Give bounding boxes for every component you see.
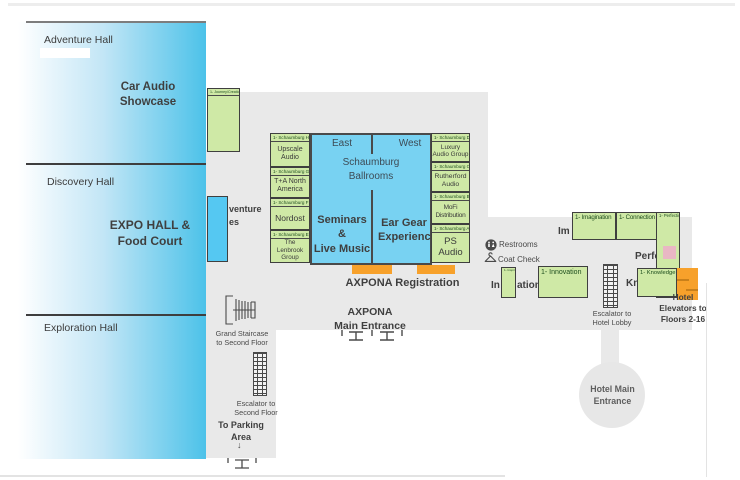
exhibitor-ta-north-america: T+A North America: [271, 176, 309, 197]
hotel-main-entrance-label: Hotel Main Entrance: [585, 384, 640, 408]
ballroom-west-label: West: [394, 138, 426, 149]
exhibitor-lenbrook-group: The Lenbrook Group: [271, 239, 309, 262]
schaumburg-ballrooms: East West Schaumburg Ballrooms Seminars …: [310, 133, 432, 265]
parking-door-symbol: [226, 457, 258, 469]
ballroom-east-label: East: [326, 138, 358, 149]
hall-divider-1: [26, 163, 206, 165]
ear-gear-experience-label: Ear Gear Experience: [378, 216, 430, 245]
elevator-door-line-2: [686, 289, 698, 291]
expo-hall-label: EXPO HALL & Food Court: [100, 218, 200, 249]
restrooms-icon: [485, 239, 497, 251]
restrooms-label: Restrooms: [499, 240, 538, 249]
booth-inspiration: 1- Inspiration: [501, 267, 516, 298]
booth-journey-creation: 1- Journey/Creation: [207, 88, 240, 152]
escalator-second-floor-label: Escalator to Second Floor: [226, 399, 286, 418]
booth-connection: 1- Connection: [616, 212, 658, 240]
booth-knowledge-header: 1- Knowledge: [638, 269, 676, 277]
booth-schaumburg-e-header: 1- Schaumburg E: [271, 231, 309, 239]
discovery-hall-label: Discovery Hall: [47, 176, 114, 189]
booth-schaumburg-e: 1- Schaumburg E The Lenbrook Group: [270, 230, 310, 263]
escalator-hotel-lobby-icon: [603, 264, 618, 308]
booth-schaumburg-g: 1- Schaumburg G T+A North America: [270, 167, 310, 198]
axpona-registration-label: AXPONA Registration: [330, 276, 475, 290]
booth-schaumburg-a-header: 1- Schaumburg A: [432, 225, 469, 233]
exhibitor-rutherford-audio: Rutherford Audio: [432, 171, 469, 191]
main-entrance-door-symbols: [340, 328, 404, 342]
imagination-room-label-fragment: Im: [558, 226, 570, 237]
booth-journey-creation-header: 1- Journey/Creation: [208, 89, 239, 96]
booth-schaumburg-d: 1- Schaumburg D Luxury Audio Group: [431, 133, 470, 162]
booth-schaumburg-h-header: 1- Schaumburg H: [271, 134, 309, 142]
booth-schaumburg-c: 1- Schaumburg C Rutherford Audio: [431, 162, 470, 192]
booth-innovation: 1- Innovation: [538, 266, 588, 298]
floor-plan: Adventure Hall Car Audio Showcase Discov…: [0, 0, 740, 480]
booth-imagination: 1- Imagination: [572, 212, 616, 240]
exhibitor-luxury-audio-group: Luxury Audio Group: [432, 142, 469, 161]
grand-staircase-icon: [222, 293, 259, 327]
booth-schaumburg-a: 1- Schaumburg A PS Audio: [431, 224, 470, 263]
exhibitor-nordost: Nordost: [271, 207, 309, 229]
halls-top-wall: [26, 21, 206, 23]
inspiration-room-label-fragment-left: In: [491, 280, 500, 291]
booth-schaumburg-f-header: 1- Schaumburg F: [271, 199, 309, 207]
blank-patch: [40, 48, 90, 58]
ballroom-divider-top: [371, 135, 373, 154]
booth-perfection-header: 1- Perfection: [657, 213, 679, 219]
booth-schaumburg-d-header: 1- Schaumburg D: [432, 134, 469, 142]
adventure-suites-label-fragment: venture es: [229, 203, 262, 228]
perfection-pink-swatch: [663, 246, 676, 259]
booth-inspiration-header: 1- Inspiration: [502, 268, 515, 273]
escalator-second-floor-icon: [253, 352, 267, 396]
booth-schaumburg-g-header: 1- Schaumburg G: [271, 168, 309, 176]
booth-schaumburg-f: 1- Schaumburg F Nordost: [270, 198, 310, 230]
car-audio-showcase-label: Car Audio Showcase: [100, 80, 196, 110]
exhibitor-mofi-distribution: MoFi Distribution: [432, 201, 469, 223]
adventure-hall-label: Adventure Hall: [44, 34, 113, 47]
exploration-hall-label: Exploration Hall: [44, 322, 118, 335]
booth-schaumburg-b: 1- Schaumburg B MoFi Distribution: [431, 192, 470, 224]
top-divider-line: [8, 3, 735, 6]
seminars-live-music-label: Seminars & Live Music: [313, 213, 371, 256]
escalator-hotel-lobby-label: Escalator to Hotel Lobby: [584, 309, 640, 328]
booth-schaumburg-h: 1- Schaumburg H Upscale Audio: [270, 133, 310, 167]
elevator-door-line-1: [677, 279, 689, 281]
booth-schaumburg-b-header: 1- Schaumburg B: [432, 193, 469, 201]
ballroom-divider-bottom: [371, 190, 373, 263]
registration-desk-left: [352, 265, 392, 274]
parking-arrow: ↓: [237, 440, 242, 450]
hotel-elevators-label: Hotel Elevators to Floors 2-16: [655, 292, 711, 324]
booth-connection-header: 1- Connection: [617, 213, 657, 222]
bottom-divider-line: [0, 475, 505, 477]
exhibitor-upscale-audio: Upscale Audio: [271, 142, 309, 166]
registration-desk-right: [417, 265, 455, 274]
booth-imagination-header: 1- Imagination: [573, 213, 615, 222]
grand-staircase-label: Grand Staircase to Second Floor: [210, 329, 274, 348]
right-wall-line: [706, 283, 707, 477]
hall-divider-2: [26, 314, 206, 316]
booth-innovation-header: 1- Innovation: [539, 267, 587, 278]
coat-check-icon: [484, 252, 497, 265]
exhibitor-ps-audio: PS Audio: [432, 233, 469, 262]
adventure-suites-box: [207, 196, 228, 262]
ballrooms-name: Schaumburg Ballrooms: [312, 156, 430, 183]
coat-check-label: Coat Check: [498, 255, 540, 264]
booth-schaumburg-c-header: 1- Schaumburg C: [432, 163, 469, 171]
